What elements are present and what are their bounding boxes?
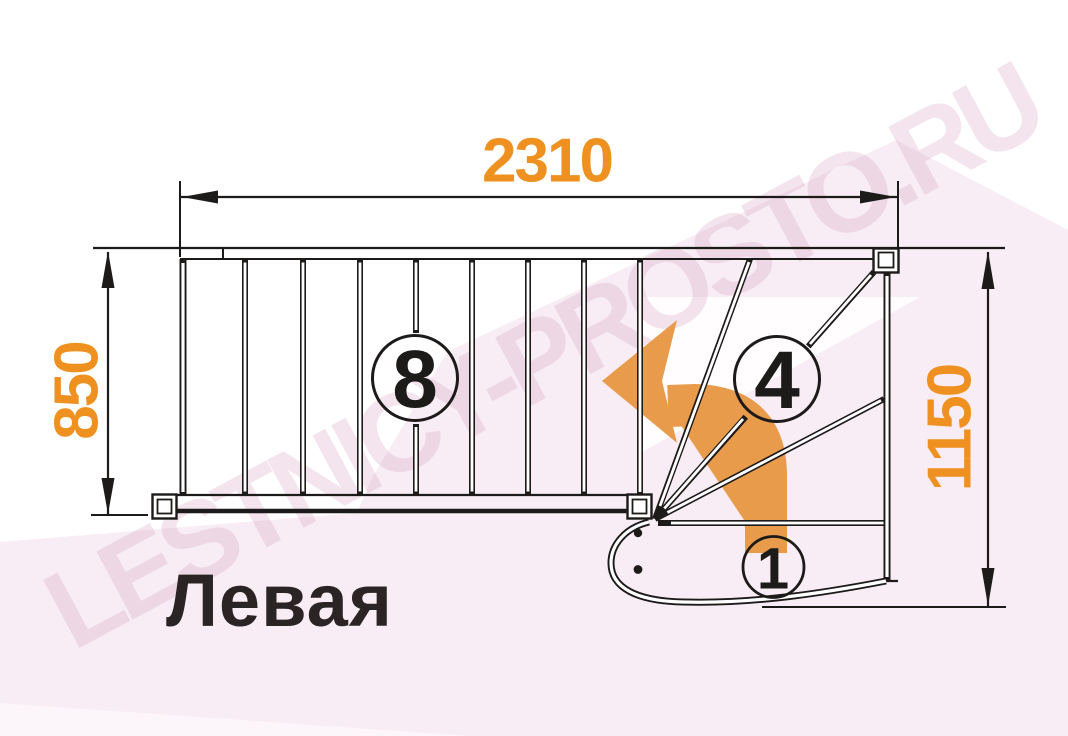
dimension-right-value: 1150	[915, 365, 986, 492]
dim-arrow-down	[982, 568, 995, 606]
baluster-dot	[634, 565, 643, 574]
stair-plan-drawing	[0, 0, 1068, 736]
dim-arrow-up	[982, 251, 995, 289]
dim-arrow-down	[102, 478, 115, 514]
stair-plan-diagram: LESTNICY-PROSTO.RU	[0, 0, 1068, 736]
dim-arrow-left	[182, 191, 218, 204]
dimension-left-value: 850	[42, 342, 113, 439]
winder-count: 4	[754, 334, 800, 428]
first-step-count: 1	[757, 536, 789, 603]
dimension-top-value: 2310	[482, 126, 612, 197]
page-title: Левая	[166, 558, 393, 643]
newel-post-bottom-left	[153, 495, 177, 519]
dim-arrow-right	[860, 191, 896, 204]
baluster-dot	[634, 529, 642, 537]
newel-post-bottom-center	[628, 495, 652, 519]
dim-arrow-up	[102, 251, 115, 288]
straight-flight-count: 8	[392, 333, 438, 427]
